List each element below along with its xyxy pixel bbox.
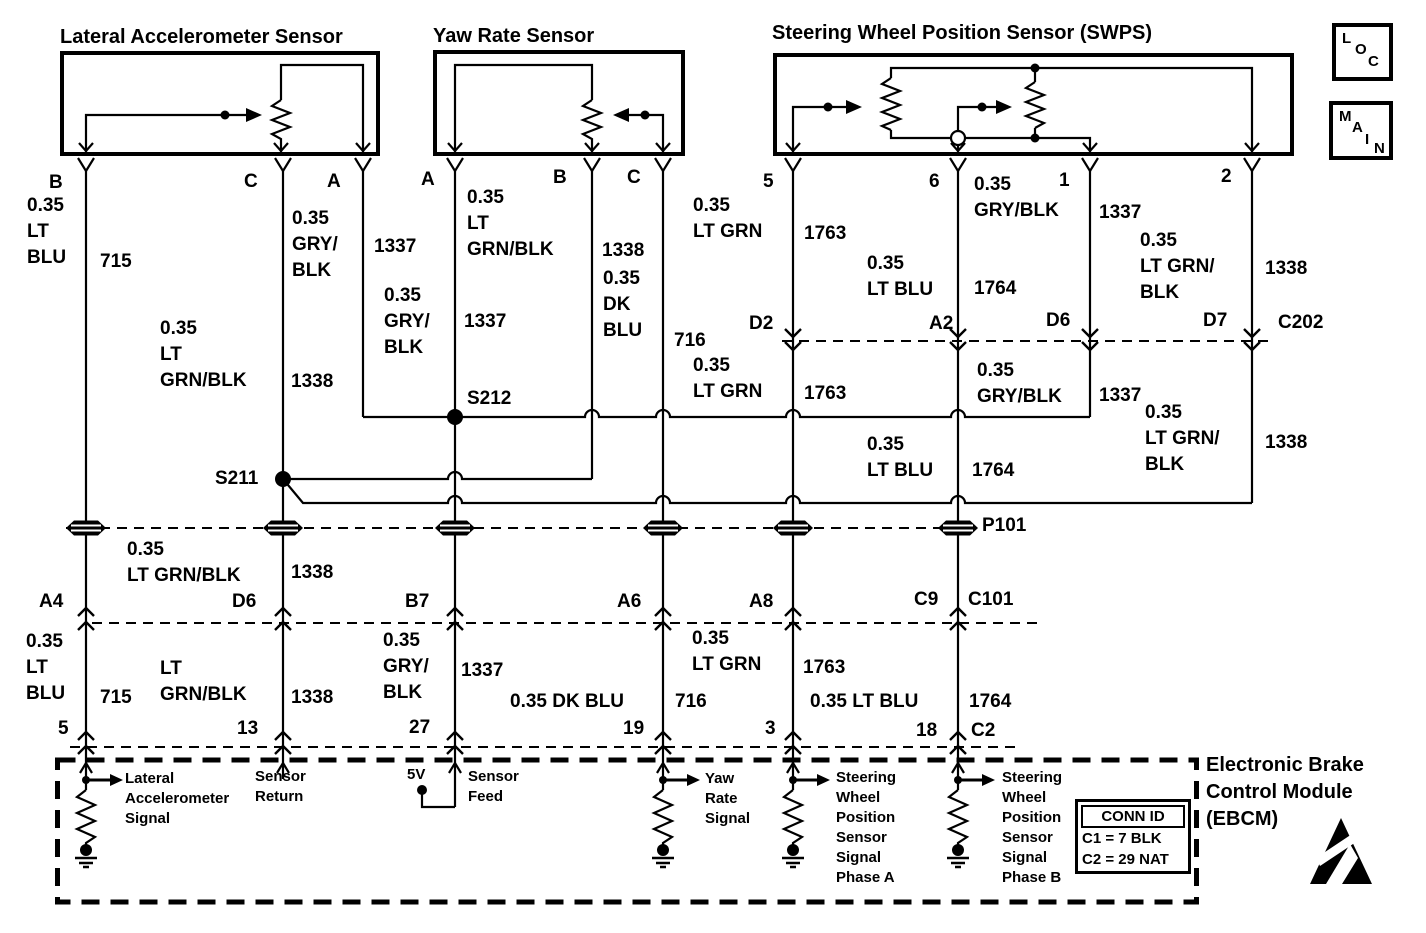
splice-s211-run-lower	[283, 479, 1252, 503]
wire-715-circuit-bottom: 715	[100, 685, 132, 711]
connector-c202	[782, 329, 1270, 350]
swps-terminal-1: 1	[1059, 168, 1070, 194]
c101-label: C101	[968, 587, 1013, 613]
wire-1338-lat-color: 0.35 LT GRN/BLK	[160, 316, 247, 394]
wiring-diagram-page: L O C M A I N CONN ID C1 = 7 BLK C2 = 29…	[0, 0, 1426, 933]
wire-1337-lat-circuit: 1337	[374, 234, 416, 260]
swps-wiper2-arrowhead	[996, 100, 1012, 114]
swps-top-bus	[891, 68, 1252, 152]
wire-1337-yaw-circuit: 1337	[464, 309, 506, 335]
lat-terminal-c: C	[244, 169, 258, 195]
c101-pin-c9: C9	[914, 587, 938, 613]
wire-1338-yaw-circuit: 1338	[602, 238, 644, 264]
ebcm-5v-label: 5V	[407, 765, 425, 785]
ebcm-pin-13: 13	[237, 716, 258, 742]
yaw-wiper-dot	[641, 111, 650, 120]
harness-wires	[86, 170, 1252, 807]
lat-wiper-line	[86, 115, 246, 152]
ebcm-swps-phase-a-cell	[782, 763, 830, 867]
swps-wiper1-line	[793, 107, 846, 152]
c202-pin-a2: A2	[929, 311, 953, 337]
wire-1338-circuit-p101: 1338	[291, 560, 333, 586]
ebcm-lateral-accel-signal-label: Lateral Accelerometer Signal	[125, 769, 229, 829]
ebcm-title: Electronic Brake Control Module (EBCM)	[1206, 752, 1364, 833]
lat-wiper-dot	[221, 111, 230, 120]
loc-letter: L	[1342, 30, 1351, 47]
ebcm-sensor-return-label: Sensor Return	[255, 767, 306, 807]
ebcm-pin-27: 27	[409, 715, 430, 741]
swps-title: Steering Wheel Position Sensor (SWPS)	[772, 20, 1152, 47]
wire-1764-color-top: 0.35 LT BLU	[867, 251, 933, 303]
swps-bus-hop-circle	[951, 131, 965, 145]
lateral-accelerometer-sensor-title: Lateral Accelerometer Sensor	[60, 24, 343, 51]
swps-bottom-bus-dot	[1031, 134, 1040, 143]
wire-1764-circuit-bottom: 1764	[969, 689, 1011, 715]
lat-terminal-a: A	[327, 169, 341, 195]
yaw-terminal-a: A	[421, 167, 435, 193]
ebcm-pin-3: 3	[765, 716, 776, 742]
main-letter: I	[1365, 131, 1369, 148]
splice-s211	[275, 471, 291, 487]
ebcm-lateral-accel-signal-cell	[75, 763, 123, 867]
wiper-arrowheads	[221, 64, 1040, 143]
connector-c101	[78, 608, 1038, 630]
conn-id-title: CONN ID	[1081, 805, 1185, 828]
ebcm-connector-c2: C2	[971, 718, 995, 744]
ebcm-pin-18: 18	[916, 718, 937, 744]
c202-pin-d6: D6	[1046, 308, 1070, 334]
swps-resistor1	[882, 78, 900, 130]
swps-wiper2-dot	[978, 103, 987, 112]
wire-1338-yaw-color: 0.35 LT GRN/BLK	[467, 185, 554, 263]
wire-1337-swps-color: 0.35 GRY/BLK	[974, 172, 1059, 224]
wire-1338-color-p101: 0.35 LT GRN/BLK	[127, 537, 241, 589]
yaw-resistor-top-link	[455, 65, 592, 152]
wire-1337-swps-circuit: 1337	[1099, 200, 1141, 226]
c202-pin-d7: D7	[1203, 308, 1227, 334]
splice-s211-run-upper	[283, 472, 592, 479]
swps-bottom-bus	[891, 130, 1090, 152]
c202-pin-d2: D2	[749, 311, 773, 337]
c202-label: C202	[1278, 310, 1323, 336]
conn-id-row: C2 = 29 NAT	[1078, 850, 1188, 871]
c101-pin-b7: B7	[405, 589, 429, 615]
wire-1763-color-top: 0.35 LT GRN	[693, 193, 762, 245]
c101-pin-a4: A4	[39, 589, 63, 615]
c101-pin-d6: D6	[232, 589, 256, 615]
wire-716-circuit-top: 716	[674, 328, 706, 354]
conn-id-table: CONN ID C1 = 7 BLK C2 = 29 NAT	[1075, 799, 1191, 874]
wire-1763-circuit-bottom: 1763	[803, 655, 845, 681]
wire-1338-swps-circuit: 1338	[1265, 256, 1307, 282]
loc-letter: O	[1355, 41, 1367, 58]
wire-1763-color-bottom: 0.35 LT GRN	[692, 626, 761, 678]
swps-terminal-5: 5	[763, 169, 774, 195]
swps-wiper1-dot	[824, 103, 833, 112]
ebcm-pin-5: 5	[58, 716, 69, 742]
wire-715-color-bottom: 0.35 LT BLU	[26, 629, 65, 707]
swps-terminal-2: 2	[1221, 164, 1232, 190]
conn-id-row: C1 = 7 BLK	[1078, 829, 1188, 850]
wire-1337-lat-color: 0.35 GRY/ BLK	[292, 206, 338, 284]
wire-716-color-top: 0.35 DK BLU	[603, 266, 642, 344]
wire-1764-circuit-mid: 1764	[972, 458, 1014, 484]
splice-s211-label: S211	[215, 466, 258, 492]
wire-1337-yaw-color: 0.35 GRY/ BLK	[384, 283, 430, 361]
swps-terminal-6: 6	[929, 169, 940, 195]
ebcm-yaw-rate-signal-cell	[652, 763, 700, 867]
wire-1337-circuit-mid: 1337	[1099, 383, 1141, 409]
lat-resistor-top-link	[281, 65, 363, 152]
c101-pin-a8: A8	[749, 589, 773, 615]
wire-1763-circuit-mid: 1763	[804, 381, 846, 407]
wire-1338-circuit-mid: 1338	[1265, 430, 1307, 456]
main-letter: M	[1339, 108, 1352, 125]
yaw-terminal-b: B	[553, 165, 567, 191]
main-button[interactable]: M A I N	[1329, 101, 1393, 160]
wire-1337-color-mid: 0.35 GRY/BLK	[977, 358, 1062, 410]
lateral-accelerometer-sensor-box	[62, 53, 378, 154]
wire-1764-circuit-top: 1764	[974, 276, 1016, 302]
swps-top-bus-dot	[1031, 64, 1040, 73]
splice-s212	[447, 409, 463, 425]
yaw-wiper-arrowhead	[613, 108, 629, 122]
yaw-rate-sensor-box	[435, 52, 683, 154]
wire-5v-feed-tail	[422, 792, 455, 807]
loc-button[interactable]: L O C	[1332, 23, 1393, 81]
splices	[275, 409, 463, 487]
ebcm-5v-node-dot	[417, 785, 427, 795]
p101-label: P101	[982, 513, 1026, 539]
swps-resistor2	[1026, 82, 1044, 128]
wire-1338-lat-circuit: 1338	[291, 369, 333, 395]
wire-1764-color-bottom: 0.35 LT BLU	[810, 689, 918, 715]
ebcm-swps-phase-b-cell	[947, 763, 995, 867]
swps-wiper1-arrowhead	[846, 100, 862, 114]
swps-wiper2-line	[958, 107, 996, 131]
wire-1338-swps-color: 0.35 LT GRN/ BLK	[1140, 228, 1215, 306]
main-letter: A	[1352, 119, 1363, 136]
wire-1338-color-bottom: LT GRN/BLK	[160, 656, 247, 708]
ebcm-pin-19: 19	[623, 716, 644, 742]
c101-pin-a6: A6	[617, 589, 641, 615]
wire-1338-circuit-bottom: 1338	[291, 685, 333, 711]
yaw-terminal-c: C	[627, 165, 641, 191]
ebcm-sensor-feed-label: Sensor Feed	[468, 767, 519, 807]
connector-p101	[66, 521, 978, 536]
ebcm-swps-phase-a-label: Steering Wheel Position Sensor Signal Ph…	[836, 768, 896, 888]
wire-1763-color-mid: 0.35 LT GRN	[693, 353, 762, 405]
wire-715-color-top: 0.35 LT BLU	[27, 193, 66, 271]
wire-1763-circuit-top: 1763	[804, 221, 846, 247]
wire-715-circuit-top: 715	[100, 249, 132, 275]
wire-1338-color-mid: 0.35 LT GRN/ BLK	[1145, 400, 1220, 478]
main-letter: N	[1374, 140, 1385, 157]
sensor-internals	[86, 65, 1252, 152]
ebcm-yaw-rate-signal-label: Yaw Rate Signal	[705, 769, 750, 829]
lat-wiper-arrowhead	[246, 108, 262, 122]
wire-716-color-bottom: 0.35 DK BLU	[510, 689, 624, 715]
wire-1764-color-mid: 0.35 LT BLU	[867, 432, 933, 484]
yaw-rate-sensor-title: Yaw Rate Sensor	[433, 23, 594, 50]
ebcm-swps-phase-b-label: Steering Wheel Position Sensor Signal Ph…	[1002, 768, 1062, 888]
splice-s212-label: S212	[467, 386, 511, 412]
wire-716-circuit-bottom: 716	[675, 689, 707, 715]
loc-letter: C	[1368, 53, 1379, 70]
ebcm-connector-face	[70, 732, 1022, 754]
wire-1337-color-bottom: 0.35 GRY/ BLK	[383, 628, 429, 706]
wire-1337-circuit-bottom: 1337	[461, 658, 503, 684]
box-bottom-arrows	[79, 143, 1259, 151]
